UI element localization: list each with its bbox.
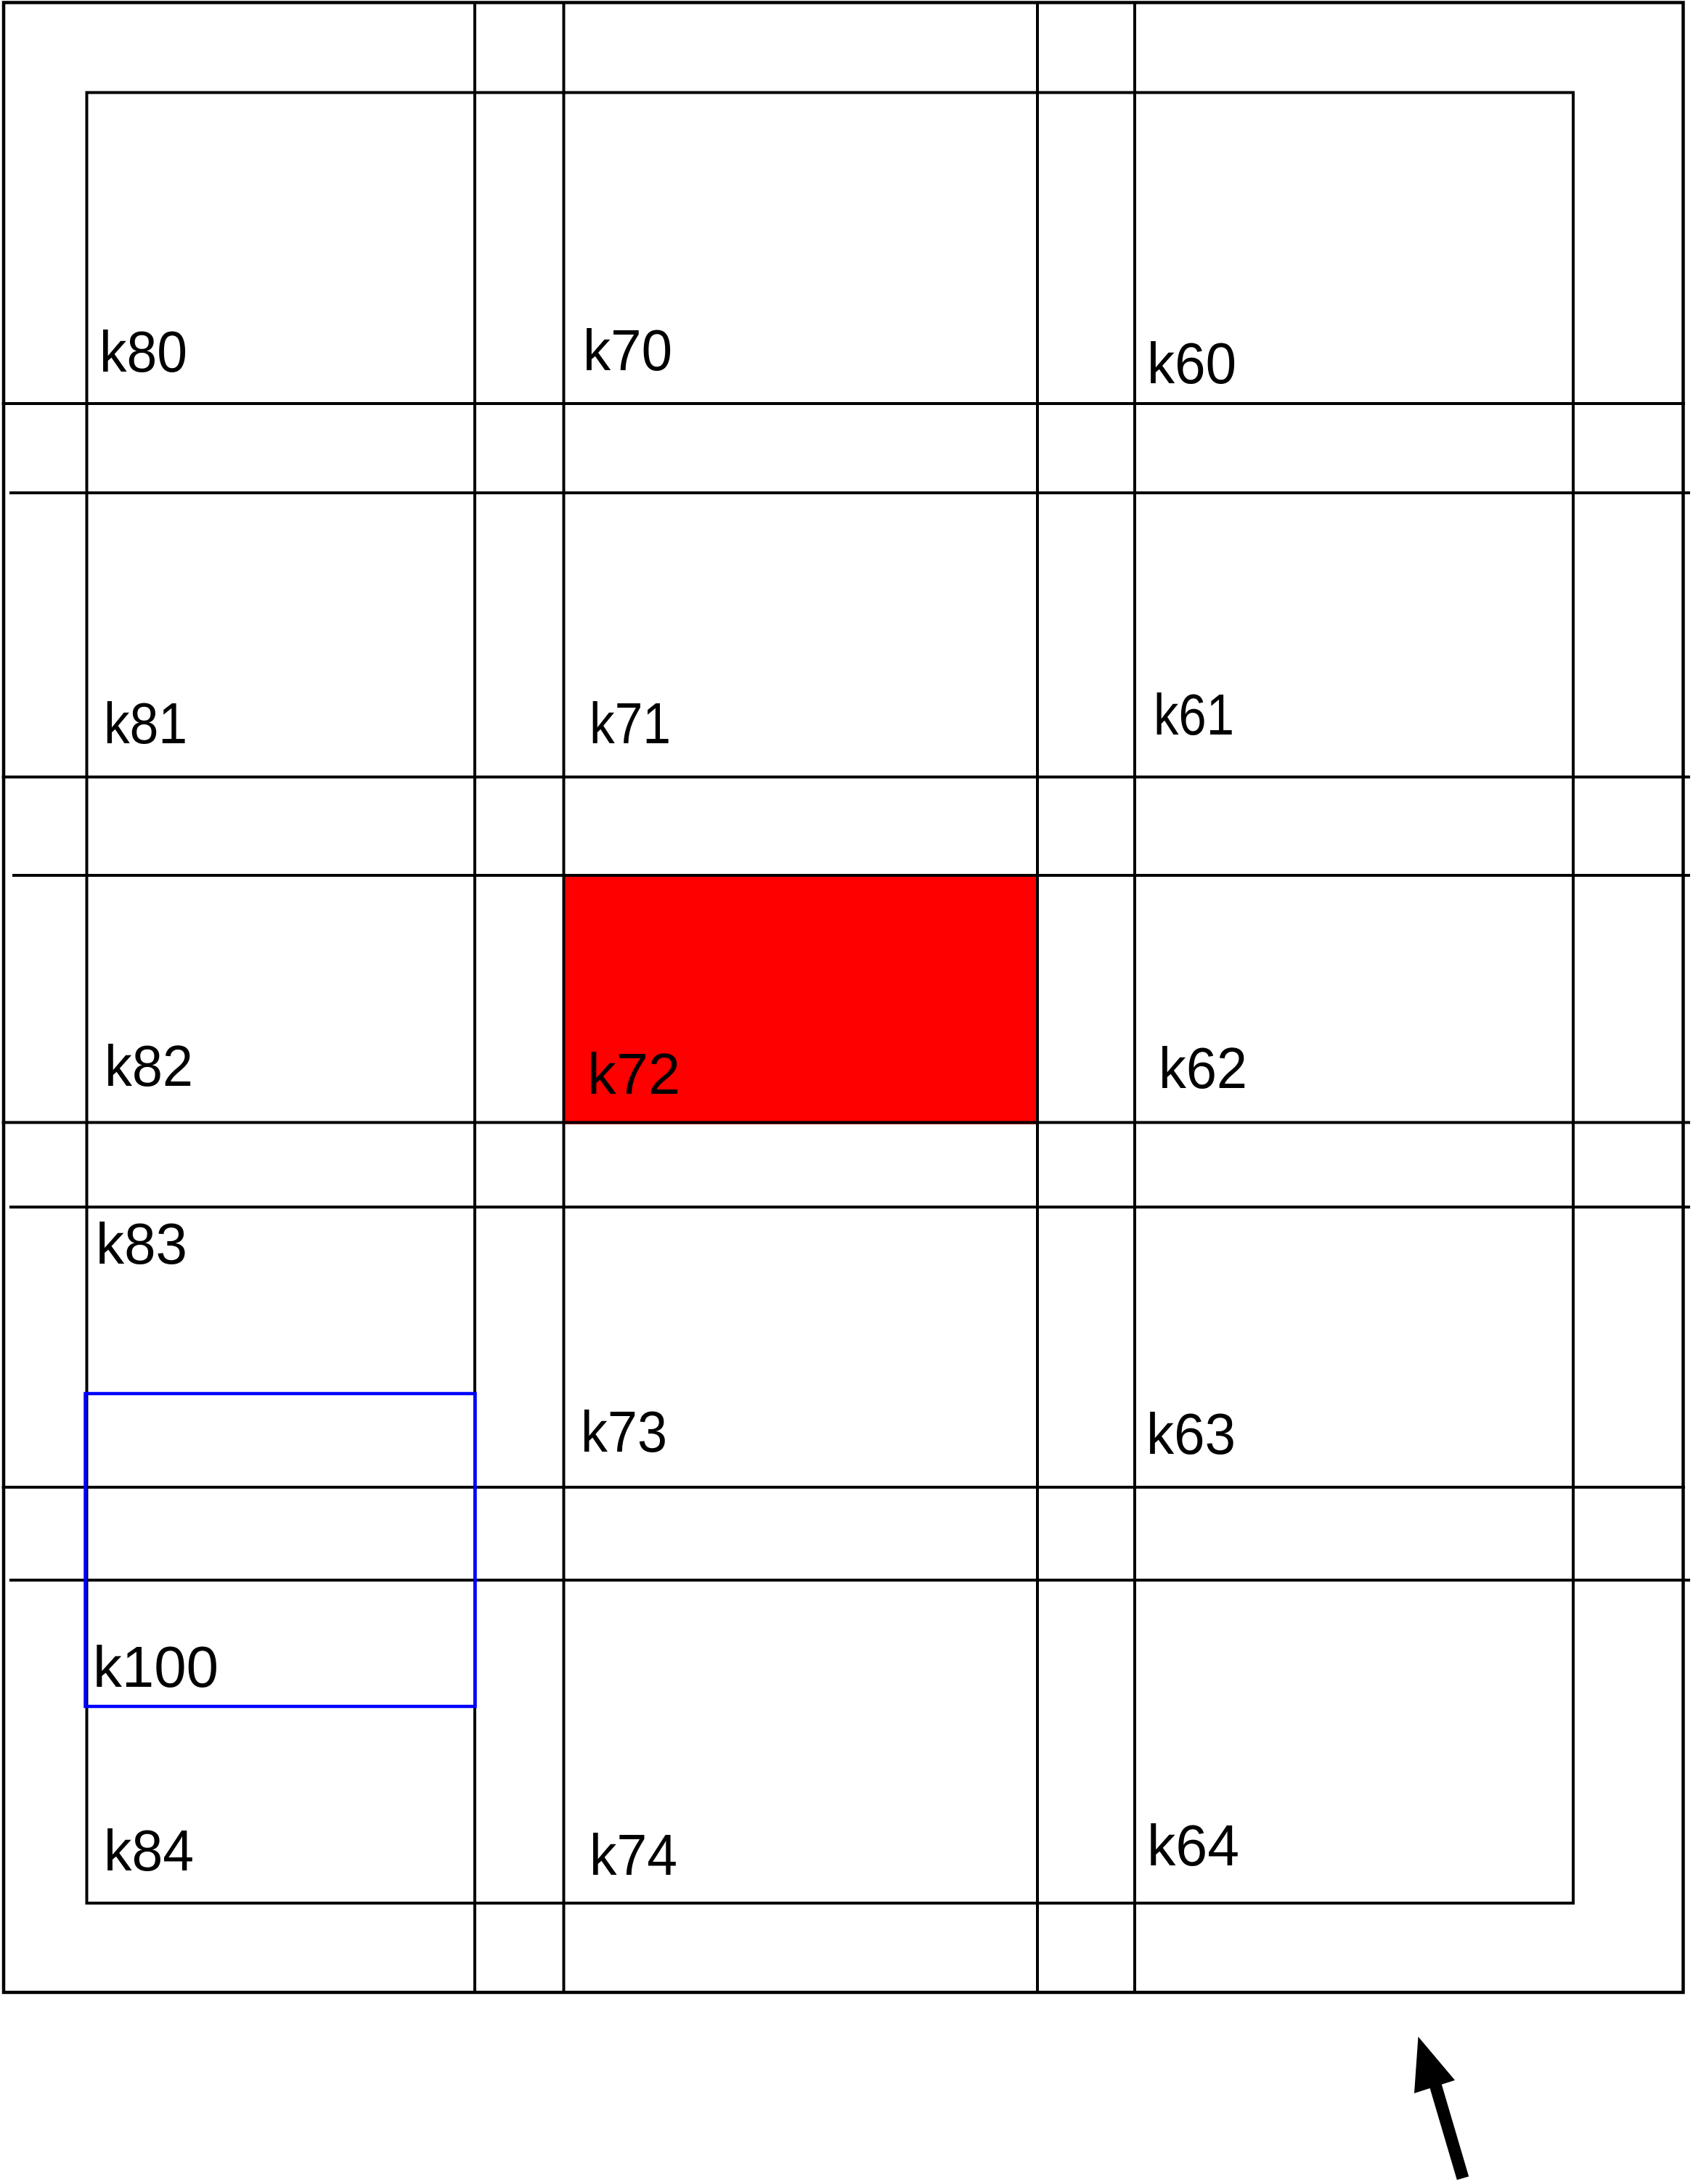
svg-text:k61: k61 bbox=[1154, 682, 1234, 747]
svg-text:k82: k82 bbox=[105, 1034, 193, 1098]
svg-text:k63: k63 bbox=[1146, 1402, 1236, 1466]
svg-text:k70: k70 bbox=[583, 318, 672, 383]
svg-text:k72: k72 bbox=[587, 1042, 680, 1106]
svg-text:k83: k83 bbox=[96, 1211, 187, 1276]
svg-text:k84: k84 bbox=[104, 1818, 194, 1883]
svg-text:k60: k60 bbox=[1147, 331, 1236, 396]
svg-text:k74: k74 bbox=[590, 1823, 677, 1887]
svg-text:k100: k100 bbox=[93, 1635, 219, 1699]
svg-text:k73: k73 bbox=[581, 1399, 667, 1464]
svg-text:k80: k80 bbox=[99, 319, 187, 384]
svg-text:k71: k71 bbox=[590, 691, 671, 756]
svg-text:k62: k62 bbox=[1159, 1036, 1247, 1100]
svg-text:k81: k81 bbox=[104, 691, 187, 756]
svg-text:k64: k64 bbox=[1147, 1813, 1239, 1878]
